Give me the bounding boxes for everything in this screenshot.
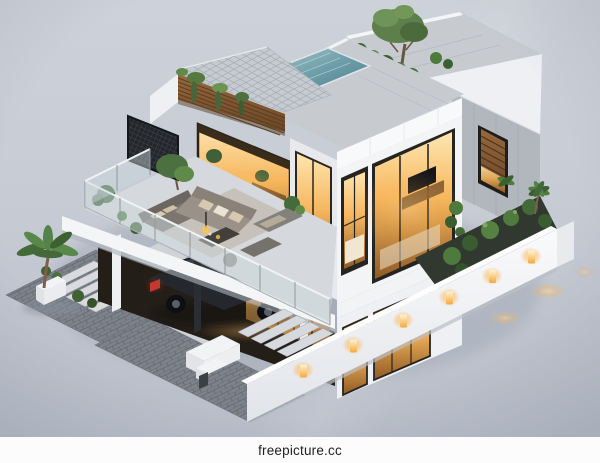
render-canvas: freepicture.cc — [0, 0, 600, 463]
villa-illustration — [0, 0, 600, 463]
vignette-overlay — [0, 0, 600, 463]
watermark-bar: freepicture.cc — [0, 437, 600, 463]
watermark-text: freepicture.cc — [258, 443, 342, 458]
